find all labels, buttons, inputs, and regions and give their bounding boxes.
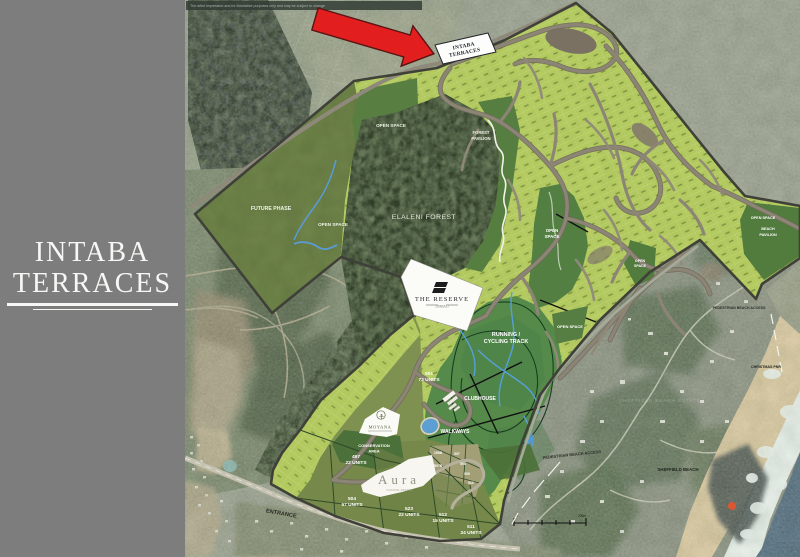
svg-text:THE RESERVE: THE RESERVE (415, 296, 469, 303)
svg-text:150B: 150B (434, 451, 443, 455)
svg-text:SPACE: SPACE (545, 234, 560, 239)
svg-text:BEACH: BEACH (761, 227, 775, 231)
svg-text:497: 497 (352, 454, 360, 460)
svg-text:MOYANA: MOYANA (369, 425, 392, 430)
svg-text:OPEN: OPEN (635, 259, 646, 263)
svg-text:501: 501 (425, 371, 433, 377)
svg-text:FUTURE PHASE: FUTURE PHASE (251, 206, 292, 212)
svg-text:CONSERVATION: CONSERVATION (358, 443, 390, 448)
svg-text:WALKWAYS: WALKWAYS (441, 429, 471, 435)
svg-text:510: 510 (468, 481, 474, 485)
svg-text:CHRISTMAS PNR: CHRISTMAS PNR (751, 365, 781, 369)
svg-text:OPEN SPACE: OPEN SPACE (751, 216, 776, 220)
svg-text:PAVILION: PAVILION (471, 136, 490, 141)
svg-text:200m: 200m (578, 514, 586, 518)
svg-text:CLUBHOUSE: CLUBHOUSE (464, 396, 496, 402)
svg-text:SPACE: SPACE (634, 264, 647, 268)
svg-text:RUNNING /: RUNNING / (492, 332, 521, 338)
svg-text:22 UNITS: 22 UNITS (345, 460, 367, 466)
svg-text:15 UNITS: 15 UNITS (432, 518, 454, 524)
svg-text:507: 507 (454, 452, 460, 456)
svg-text:AREA: AREA (368, 449, 379, 454)
svg-text:509: 509 (464, 472, 470, 476)
svg-text:504: 504 (348, 496, 356, 502)
svg-text:512: 512 (439, 512, 447, 518)
svg-text:511: 511 (467, 524, 475, 530)
svg-text:57 UNITS: 57 UNITS (341, 502, 363, 508)
svg-text:COASTAL ESTATE: COASTAL ESTATE (386, 488, 412, 492)
svg-text:22 UNITS: 22 UNITS (398, 512, 420, 518)
svg-text:The artist impression and for: The artist impression and for illustrati… (190, 4, 325, 8)
svg-text:ZIMBALI: ZIMBALI (435, 305, 448, 309)
svg-text:OPEN SPACE: OPEN SPACE (376, 123, 406, 128)
svg-text:Aura: Aura (378, 472, 420, 487)
svg-text:24 UNITS: 24 UNITS (460, 530, 482, 536)
svg-text:PEDESTRIAN BEACH ACCESS: PEDESTRIAN BEACH ACCESS (713, 306, 766, 310)
svg-text:PAVILION: PAVILION (759, 233, 777, 237)
svg-text:OPEN SPACE: OPEN SPACE (318, 222, 348, 227)
svg-text:B07B: B07B (434, 464, 443, 468)
svg-text:ELALENI FOREST: ELALENI FOREST (392, 214, 456, 221)
svg-text:523: 523 (405, 506, 413, 512)
svg-text:73 UNITS: 73 UNITS (418, 377, 440, 383)
svg-text:508: 508 (460, 462, 466, 466)
svg-text:OPEN SPACE: OPEN SPACE (557, 324, 583, 329)
svg-text:SHEFFIELD BEACH: SHEFFIELD BEACH (657, 467, 698, 472)
svg-text:SHEFFIELD BEACH ESTATE: SHEFFIELD BEACH ESTATE (619, 398, 701, 403)
svg-text:OPEN: OPEN (546, 228, 558, 233)
svg-text:CYCLING TRACK: CYCLING TRACK (484, 339, 529, 345)
svg-text:FOREST: FOREST (473, 130, 490, 135)
